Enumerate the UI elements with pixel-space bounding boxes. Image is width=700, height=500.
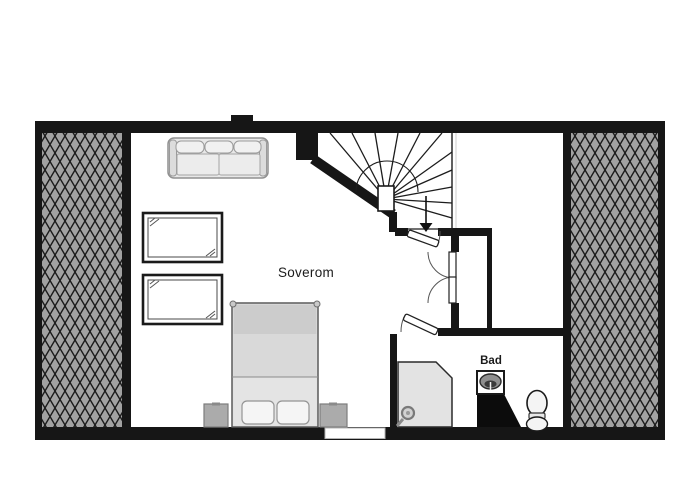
wall-left-outer	[35, 121, 42, 440]
attic-hatch-left	[42, 133, 122, 427]
sofa-seat-cushion	[177, 154, 219, 175]
wall-bathroom-top	[438, 328, 571, 336]
walls	[35, 115, 665, 440]
toilet-bowl	[527, 391, 547, 416]
wall-bathroom-left	[390, 334, 397, 427]
door-bathroom	[401, 314, 438, 336]
bed-duvet-top	[234, 305, 317, 335]
roof-window-2	[143, 275, 222, 324]
bed-post	[230, 301, 236, 307]
sink-vanity	[477, 371, 521, 427]
wall-stair-bottom	[395, 228, 408, 236]
wall-top	[35, 121, 665, 133]
bed	[230, 301, 320, 427]
bed-duvet	[234, 334, 317, 377]
stair-newel-post	[378, 186, 394, 211]
shower	[397, 362, 452, 427]
sofa-back-cushion	[176, 141, 204, 153]
bed-post	[314, 301, 320, 307]
wall-top-bump	[231, 115, 253, 122]
toilet-base	[527, 417, 548, 431]
bottom-wall-opening	[325, 428, 385, 439]
nightstand-right	[320, 403, 347, 428]
toilet	[527, 391, 548, 432]
sofa-back-cushion	[205, 141, 233, 153]
door-stairs	[407, 230, 440, 248]
sofa-armrest-left	[170, 140, 177, 176]
wall-wardrobe-stub-bottom	[451, 303, 459, 328]
wall-left-inner	[122, 133, 131, 427]
attic-hatch-right	[571, 133, 658, 427]
sofa-back-cushion	[234, 141, 261, 153]
roof-window-1	[143, 213, 222, 262]
sofa	[168, 138, 268, 178]
wardrobe-doors	[428, 252, 456, 303]
sofa-seat-cushion	[219, 154, 260, 175]
bathroom-label: Bad	[480, 355, 502, 367]
wall-wardrobe-stub-top	[451, 231, 459, 252]
bed-pillow	[277, 401, 309, 424]
wall-right-inner	[563, 133, 571, 427]
vanity-counter	[477, 394, 521, 427]
wall-closet-right	[487, 236, 492, 328]
floor-plan-canvas: Soverom Bad	[0, 0, 700, 500]
bed-pillow	[242, 401, 274, 424]
wall-stair-stub	[296, 133, 318, 160]
nightstand-left	[204, 403, 228, 428]
floor-plan-svg: Soverom Bad	[0, 0, 700, 500]
sink-basin-icon	[480, 374, 501, 390]
wall-right-outer	[658, 121, 665, 440]
bedroom-label: Soverom	[278, 265, 334, 280]
